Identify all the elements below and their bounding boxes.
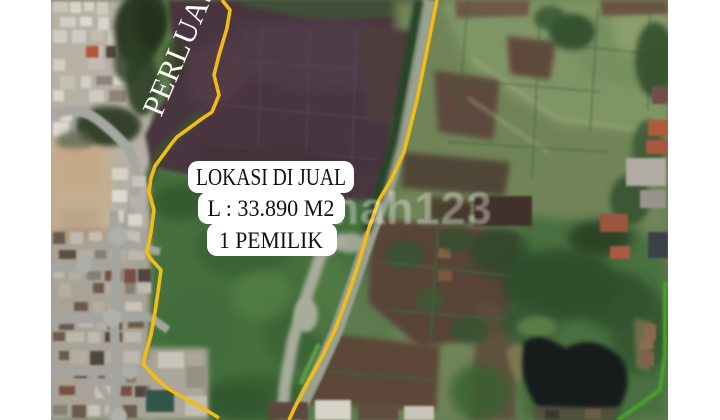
svg-text:LOKASI DI JUAL: LOKASI DI JUAL xyxy=(196,165,346,191)
svg-text:1 PEMILIK: 1 PEMILIK xyxy=(219,228,323,253)
svg-text:L : 33.890 M2: L : 33.890 M2 xyxy=(208,196,335,221)
